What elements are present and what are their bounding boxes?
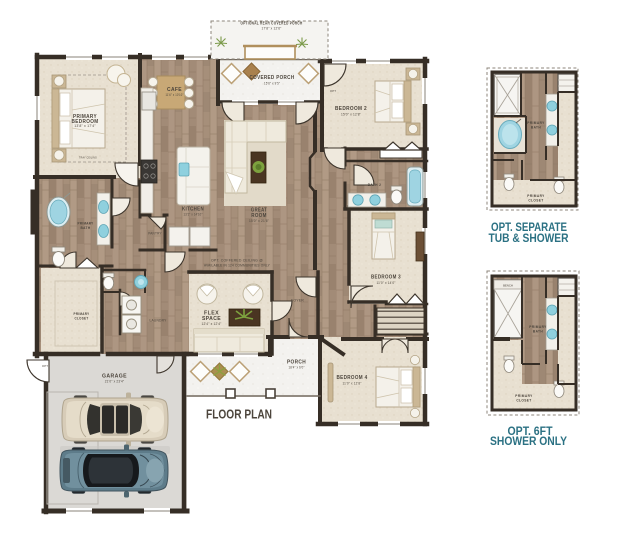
svg-text:15'0" x 12'8": 15'0" x 12'8": [341, 113, 361, 117]
svg-text:12'4" x 12'4": 12'4" x 12'4": [202, 322, 222, 326]
svg-text:21'0" x 23'4": 21'0" x 23'4": [105, 380, 125, 384]
svg-text:BENCH: BENCH: [503, 284, 513, 288]
svg-text:13'8" x 17'4": 13'8" x 17'4": [74, 124, 96, 128]
svg-text:PRIMARY: PRIMARY: [74, 312, 90, 316]
svg-text:15'6" x 9'5": 15'6" x 9'5": [264, 82, 280, 86]
svg-text:OPT: OPT: [330, 89, 336, 93]
svg-text:BATH: BATH: [81, 226, 91, 230]
svg-text:CLOSET: CLOSET: [528, 199, 543, 203]
svg-text:TRAY CEILING: TRAY CEILING: [79, 156, 97, 160]
svg-text:OPTIONAL REAR COVERED PORCH: OPTIONAL REAR COVERED PORCH: [241, 21, 303, 26]
svg-text:BATH: BATH: [533, 330, 544, 334]
svg-text:OPT. COFFERED CEILING @: OPT. COFFERED CEILING @: [211, 259, 263, 263]
svg-text:COVERED PORCH: COVERED PORCH: [250, 75, 295, 81]
svg-text:LAUNDRY: LAUNDRY: [150, 319, 167, 323]
svg-text:18'4" x 6'0": 18'4" x 6'0": [289, 366, 305, 370]
svg-text:PRIMARY: PRIMARY: [527, 121, 545, 125]
svg-text:PRIMARY: PRIMARY: [527, 194, 545, 198]
svg-text:AVAILABLE IN 124 COMMUNITIES O: AVAILABLE IN 124 COMMUNITIES ONLY: [204, 264, 270, 268]
svg-text:17'8" x 12'6": 17'8" x 12'6": [262, 26, 282, 30]
svg-text:PRIMARY: PRIMARY: [515, 394, 533, 398]
svg-text:TUB & SHOWER: TUB & SHOWER: [489, 232, 570, 245]
svg-text:OPT: OPT: [42, 364, 48, 368]
svg-text:BEDROOM 2: BEDROOM 2: [335, 106, 367, 112]
svg-text:FLOOR PLAN: FLOOR PLAN: [206, 408, 272, 422]
svg-text:BATH: BATH: [531, 126, 542, 130]
svg-text:BEDROOM 3: BEDROOM 3: [371, 275, 401, 281]
svg-text:BATH 2: BATH 2: [368, 183, 382, 187]
svg-text:PANTRY: PANTRY: [148, 232, 162, 236]
svg-text:PRIMARY: PRIMARY: [529, 325, 547, 329]
svg-text:CLOSET: CLOSET: [75, 317, 89, 321]
svg-text:13'1" x 14'10": 13'1" x 14'10": [184, 213, 203, 217]
svg-text:15'0" x 21'6": 15'0" x 21'6": [249, 219, 269, 223]
svg-text:BEDROOM 4: BEDROOM 4: [337, 375, 368, 381]
svg-text:FOYER: FOYER: [291, 299, 304, 303]
svg-text:CLOSET: CLOSET: [516, 399, 531, 403]
svg-text:11'6" x 10'10": 11'6" x 10'10": [166, 93, 184, 97]
svg-text:SHOWER ONLY: SHOWER ONLY: [490, 435, 567, 448]
svg-text:11'0" x 14'0": 11'0" x 14'0": [377, 281, 396, 285]
svg-text:11'0" x 12'8": 11'0" x 12'8": [343, 381, 362, 385]
